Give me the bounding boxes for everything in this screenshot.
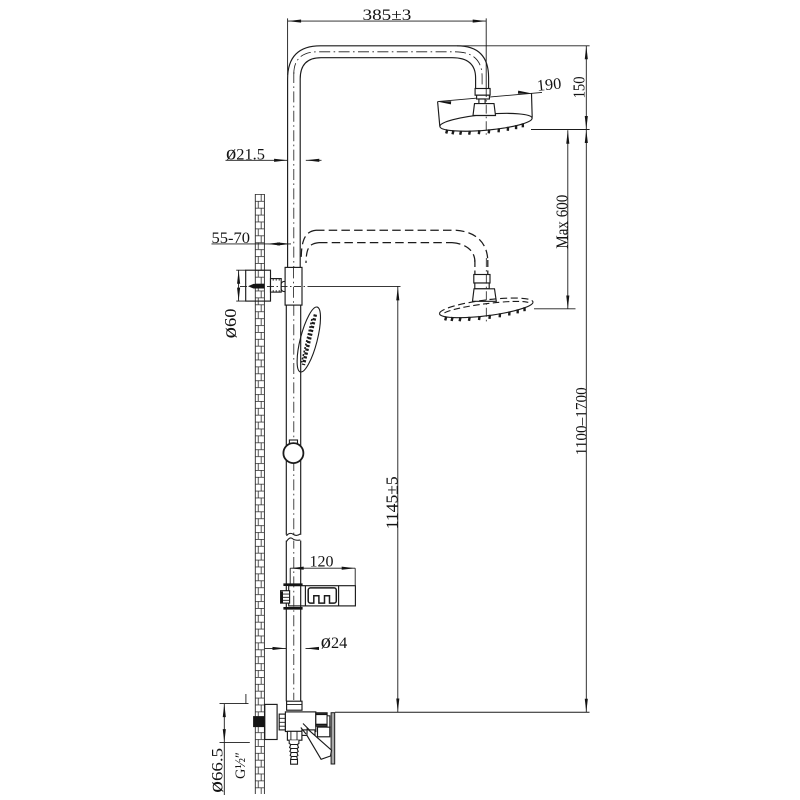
svg-text:ø24: ø24 — [321, 631, 348, 653]
svg-text:ø21.5: ø21.5 — [226, 143, 265, 164]
svg-text:ø60: ø60 — [219, 309, 241, 339]
svg-text:150: 150 — [570, 76, 589, 98]
svg-text:385±3: 385±3 — [363, 7, 412, 24]
svg-text:120: 120 — [310, 554, 334, 571]
svg-text:1145±5: 1145±5 — [382, 476, 401, 529]
svg-text:Max 600: Max 600 — [553, 195, 572, 249]
svg-text:55-70: 55-70 — [212, 230, 251, 247]
svg-text:ø66.5: ø66.5 — [205, 748, 227, 793]
svg-text:G½″: G½″ — [233, 752, 249, 779]
svg-text:1100–1700: 1100–1700 — [573, 387, 590, 455]
svg-text:190: 190 — [536, 76, 562, 95]
